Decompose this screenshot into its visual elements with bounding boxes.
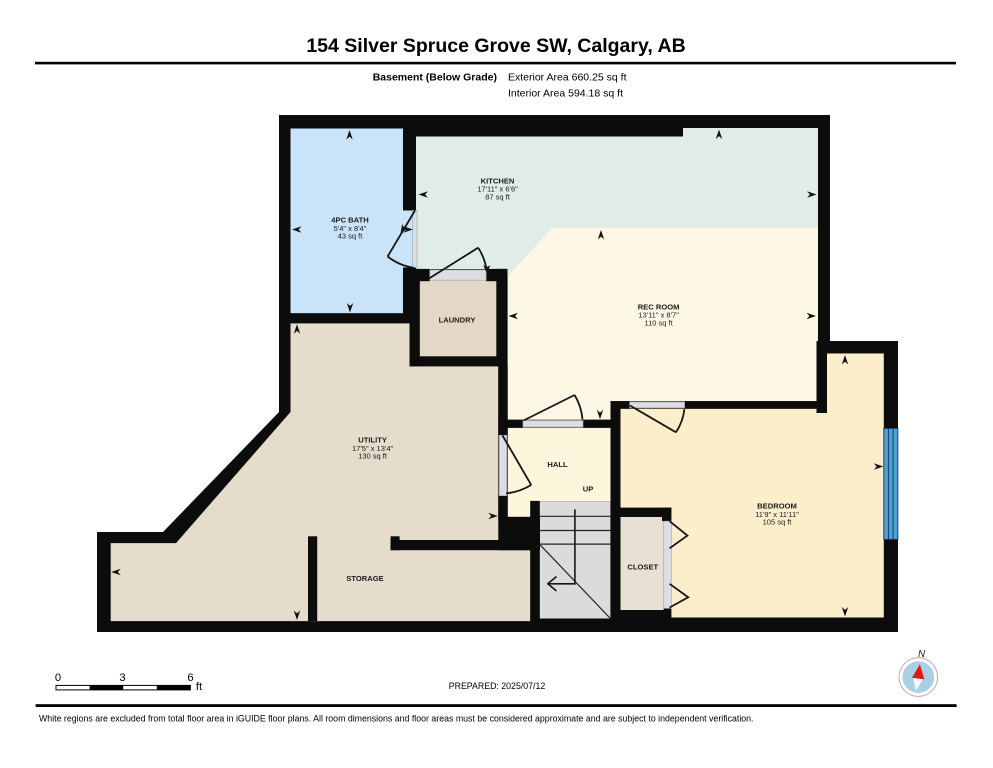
- svg-text:STORAGE: STORAGE: [346, 574, 383, 583]
- svg-text:105 sq ft: 105 sq ft: [763, 517, 793, 526]
- svg-text:LAUNDRY: LAUNDRY: [439, 315, 476, 324]
- svg-text:HALL: HALL: [547, 460, 568, 469]
- svg-text:43 sq ft: 43 sq ft: [338, 231, 364, 240]
- svg-text:PREPARED: 2025/07/12: PREPARED: 2025/07/12: [449, 681, 546, 691]
- svg-text:N: N: [918, 649, 926, 660]
- svg-text:154 Silver Spruce Grove SW, Ca: 154 Silver Spruce Grove SW, Calgary, AB: [306, 35, 685, 57]
- svg-text:ft: ft: [196, 681, 203, 693]
- svg-text:6: 6: [187, 672, 193, 684]
- svg-text:Interior Area 594.18 sq ft: Interior Area 594.18 sq ft: [508, 88, 623, 100]
- svg-text:CLOSET: CLOSET: [627, 563, 658, 572]
- svg-text:Exterior Area 660.25 sq ft: Exterior Area 660.25 sq ft: [508, 72, 627, 84]
- svg-text:110 sq ft: 110 sq ft: [644, 318, 673, 327]
- svg-text:3: 3: [119, 672, 125, 684]
- svg-text:Basement (Below Grade): Basement (Below Grade): [373, 72, 497, 84]
- svg-text:87 sq ft: 87 sq ft: [485, 192, 511, 201]
- svg-text:130 sq ft: 130 sq ft: [358, 451, 388, 460]
- svg-text:0: 0: [55, 672, 61, 684]
- svg-text:White regions are excluded fro: White regions are excluded from total fl…: [39, 713, 754, 724]
- svg-text:UP: UP: [583, 485, 594, 494]
